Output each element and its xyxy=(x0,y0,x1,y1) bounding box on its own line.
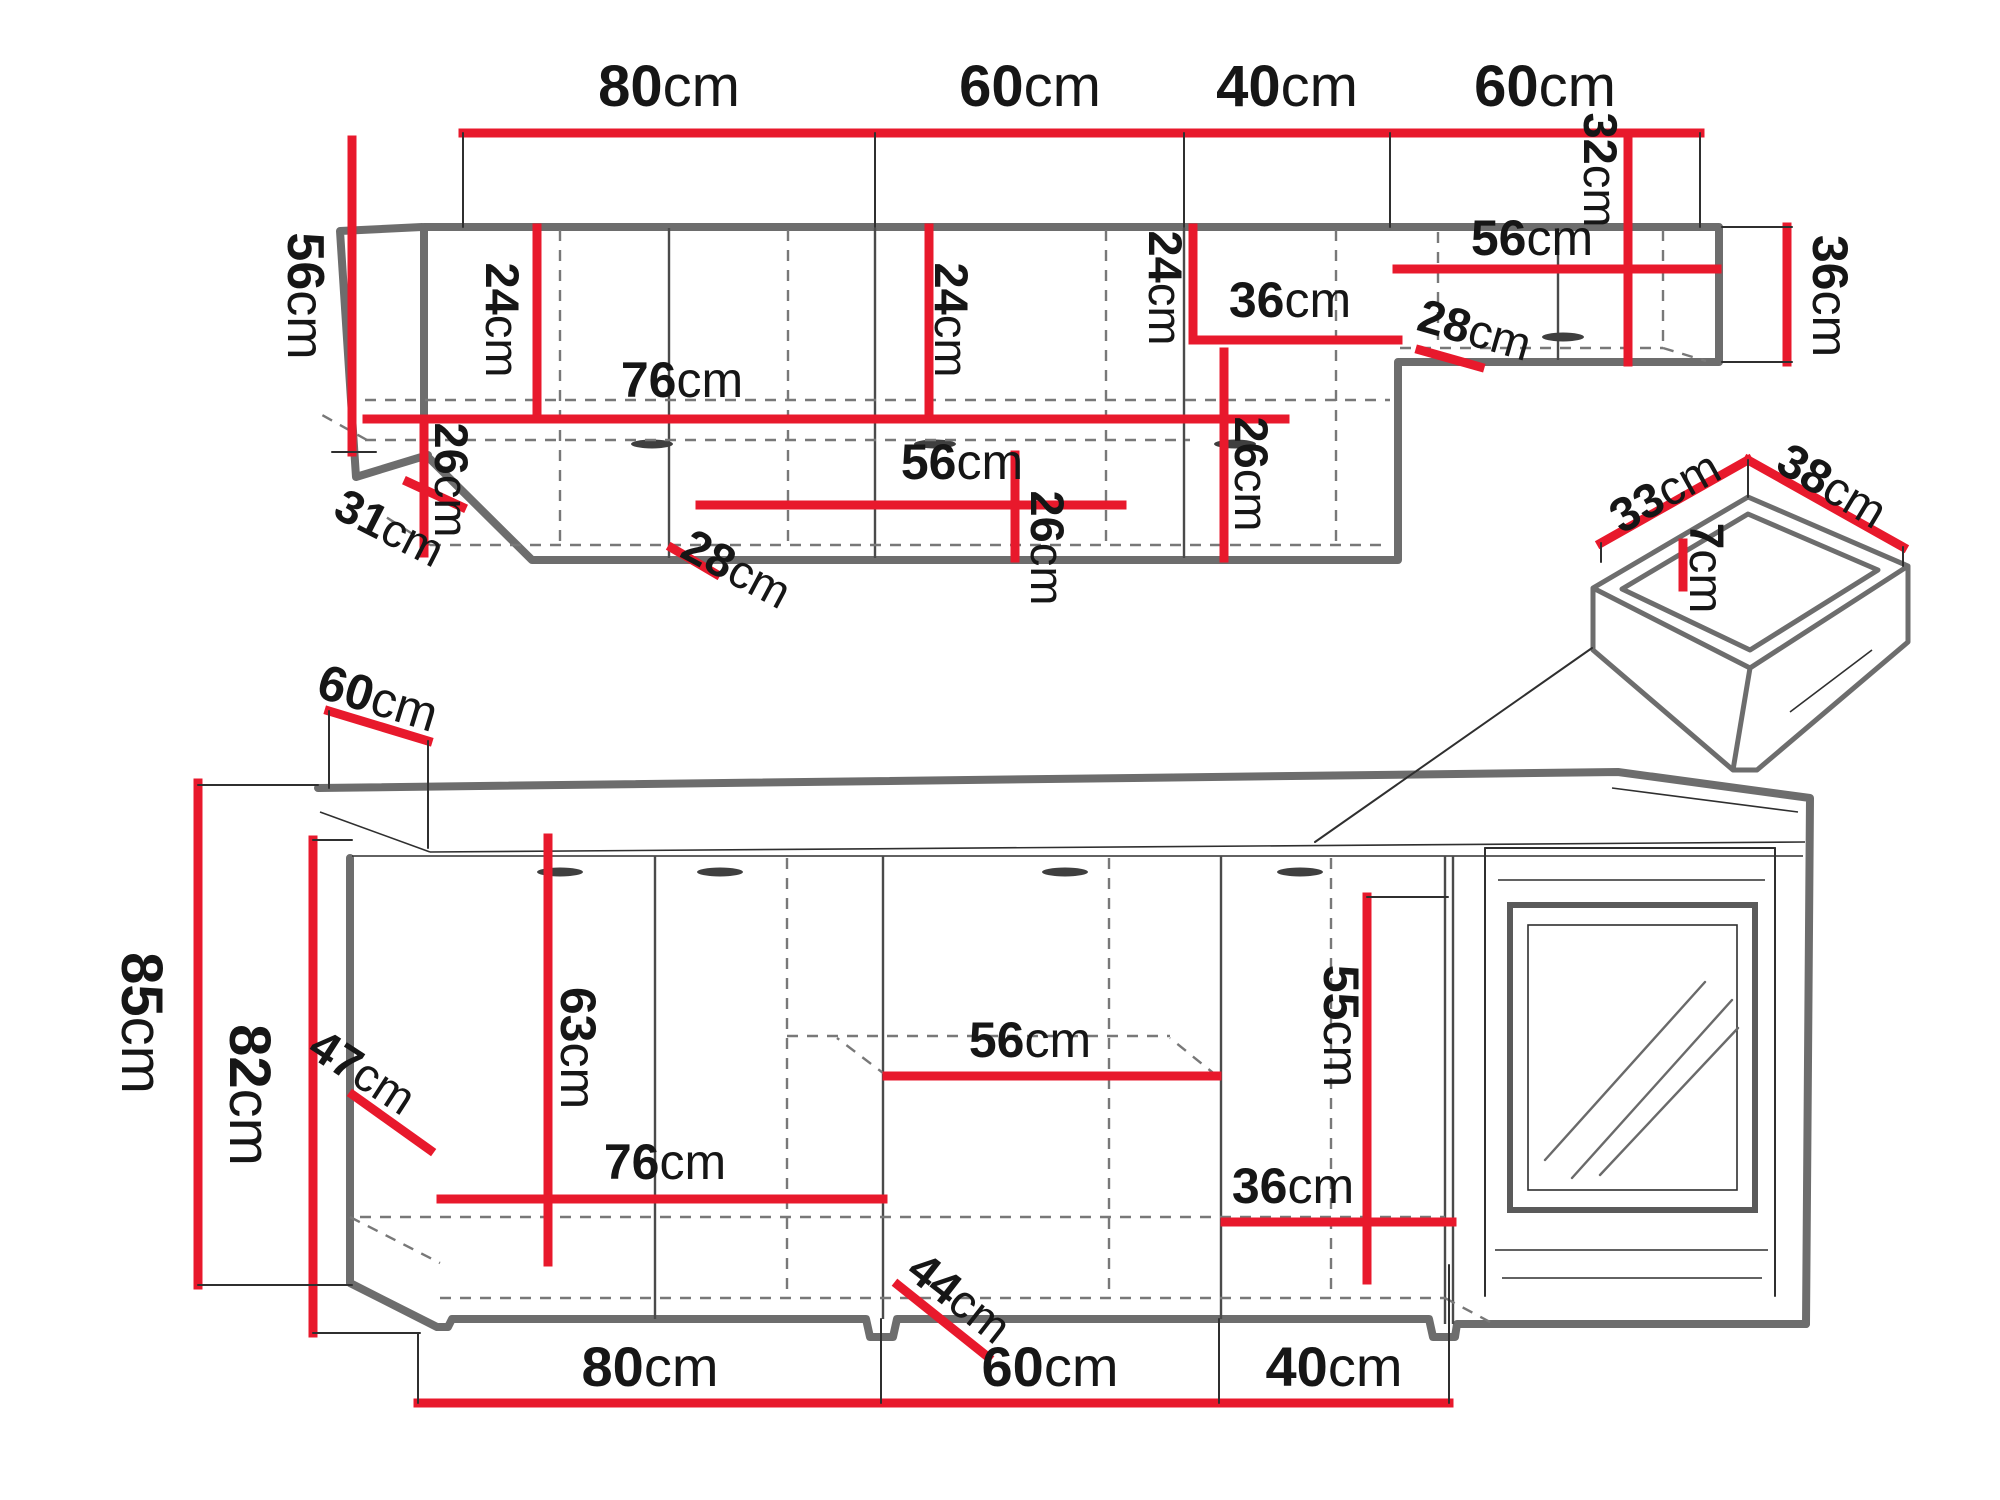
dim-label-top-width-60cm-b: 60cm xyxy=(1474,54,1616,119)
dim-label-wall-28cm-b: 28cm xyxy=(1412,288,1537,371)
dim-label-base-width-60cm: 60cm xyxy=(982,1335,1119,1398)
drawer-leader-line xyxy=(1315,648,1592,842)
dim-label-base-85cm: 85cm xyxy=(110,952,175,1094)
dim-label-drawer-7cm: 7cm xyxy=(1680,523,1733,614)
base-cabinet-counter-lines xyxy=(320,788,1805,856)
dim-label-base-47cm: 47cm xyxy=(300,1017,425,1124)
dim-label-drawer-38cm: 38cm xyxy=(1768,433,1896,539)
door-handle-icon xyxy=(1042,868,1088,877)
drawer-detail xyxy=(1315,497,1908,842)
dim-label-base-76cm: 76cm xyxy=(604,1134,726,1190)
dim-label-base-width-40cm: 40cm xyxy=(1266,1335,1403,1398)
dim-label-wall-32cm: 32cm xyxy=(1575,113,1628,228)
dim-label-top-width-40cm: 40cm xyxy=(1216,54,1358,119)
oven-glass-reflection xyxy=(1600,1028,1738,1175)
dim-label-wall-26cm-c: 26cm xyxy=(1226,417,1279,532)
base-cabinet-interior-lines xyxy=(537,856,1453,1324)
dim-label-base-82cm: 82cm xyxy=(218,1024,283,1166)
dim-label-wall-24cm-c: 24cm xyxy=(1140,231,1193,346)
dim-label-wall-28cm-a: 28cm xyxy=(674,518,800,619)
dim-label-wall-height-56cm-left: 56cm xyxy=(276,232,334,359)
oven-cabinet xyxy=(1485,848,1775,1296)
dim-label-wall-24cm-b: 24cm xyxy=(926,263,979,378)
dim-label-wall-76cm: 76cm xyxy=(621,352,743,408)
door-handle-icon xyxy=(1542,333,1584,342)
oven-glass-reflection xyxy=(1545,982,1705,1160)
dim-label-wall-26cm-b: 26cm xyxy=(1022,491,1075,606)
dim-label-base-width-80cm: 80cm xyxy=(582,1335,719,1398)
oven-glass-reflection xyxy=(1572,1000,1732,1178)
dim-label-top-width-60cm-a: 60cm xyxy=(959,54,1101,119)
cabinet-dimension-diagram: 80cm60cm40cm60cm56cm24cm76cm26cm28cm24cm… xyxy=(0,0,2000,1500)
dim-label-wall-36cm-right: 36cm xyxy=(1802,235,1858,357)
dim-label-wall-24cm-a: 24cm xyxy=(477,263,530,378)
dim-label-wall-56cm-mid: 56cm xyxy=(901,434,1023,490)
dim-label-top-width-80cm: 80cm xyxy=(598,54,740,119)
oven-window xyxy=(1510,905,1755,1210)
dim-label-base-36cm: 36cm xyxy=(1232,1158,1354,1214)
dim-label-base-55cm: 55cm xyxy=(1313,965,1369,1087)
diagram-stage: 80cm60cm40cm60cm56cm24cm76cm26cm28cm24cm… xyxy=(0,0,2000,1500)
dim-label-wall-36cm-mid: 36cm xyxy=(1229,272,1351,328)
dim-label-base-56cm: 56cm xyxy=(969,1012,1091,1068)
base-cabinet-dashed-depth-lines xyxy=(350,858,1490,1322)
door-handle-icon xyxy=(1277,868,1323,877)
dim-label-base-63cm: 63cm xyxy=(550,987,606,1109)
door-handle-icon xyxy=(697,868,743,877)
